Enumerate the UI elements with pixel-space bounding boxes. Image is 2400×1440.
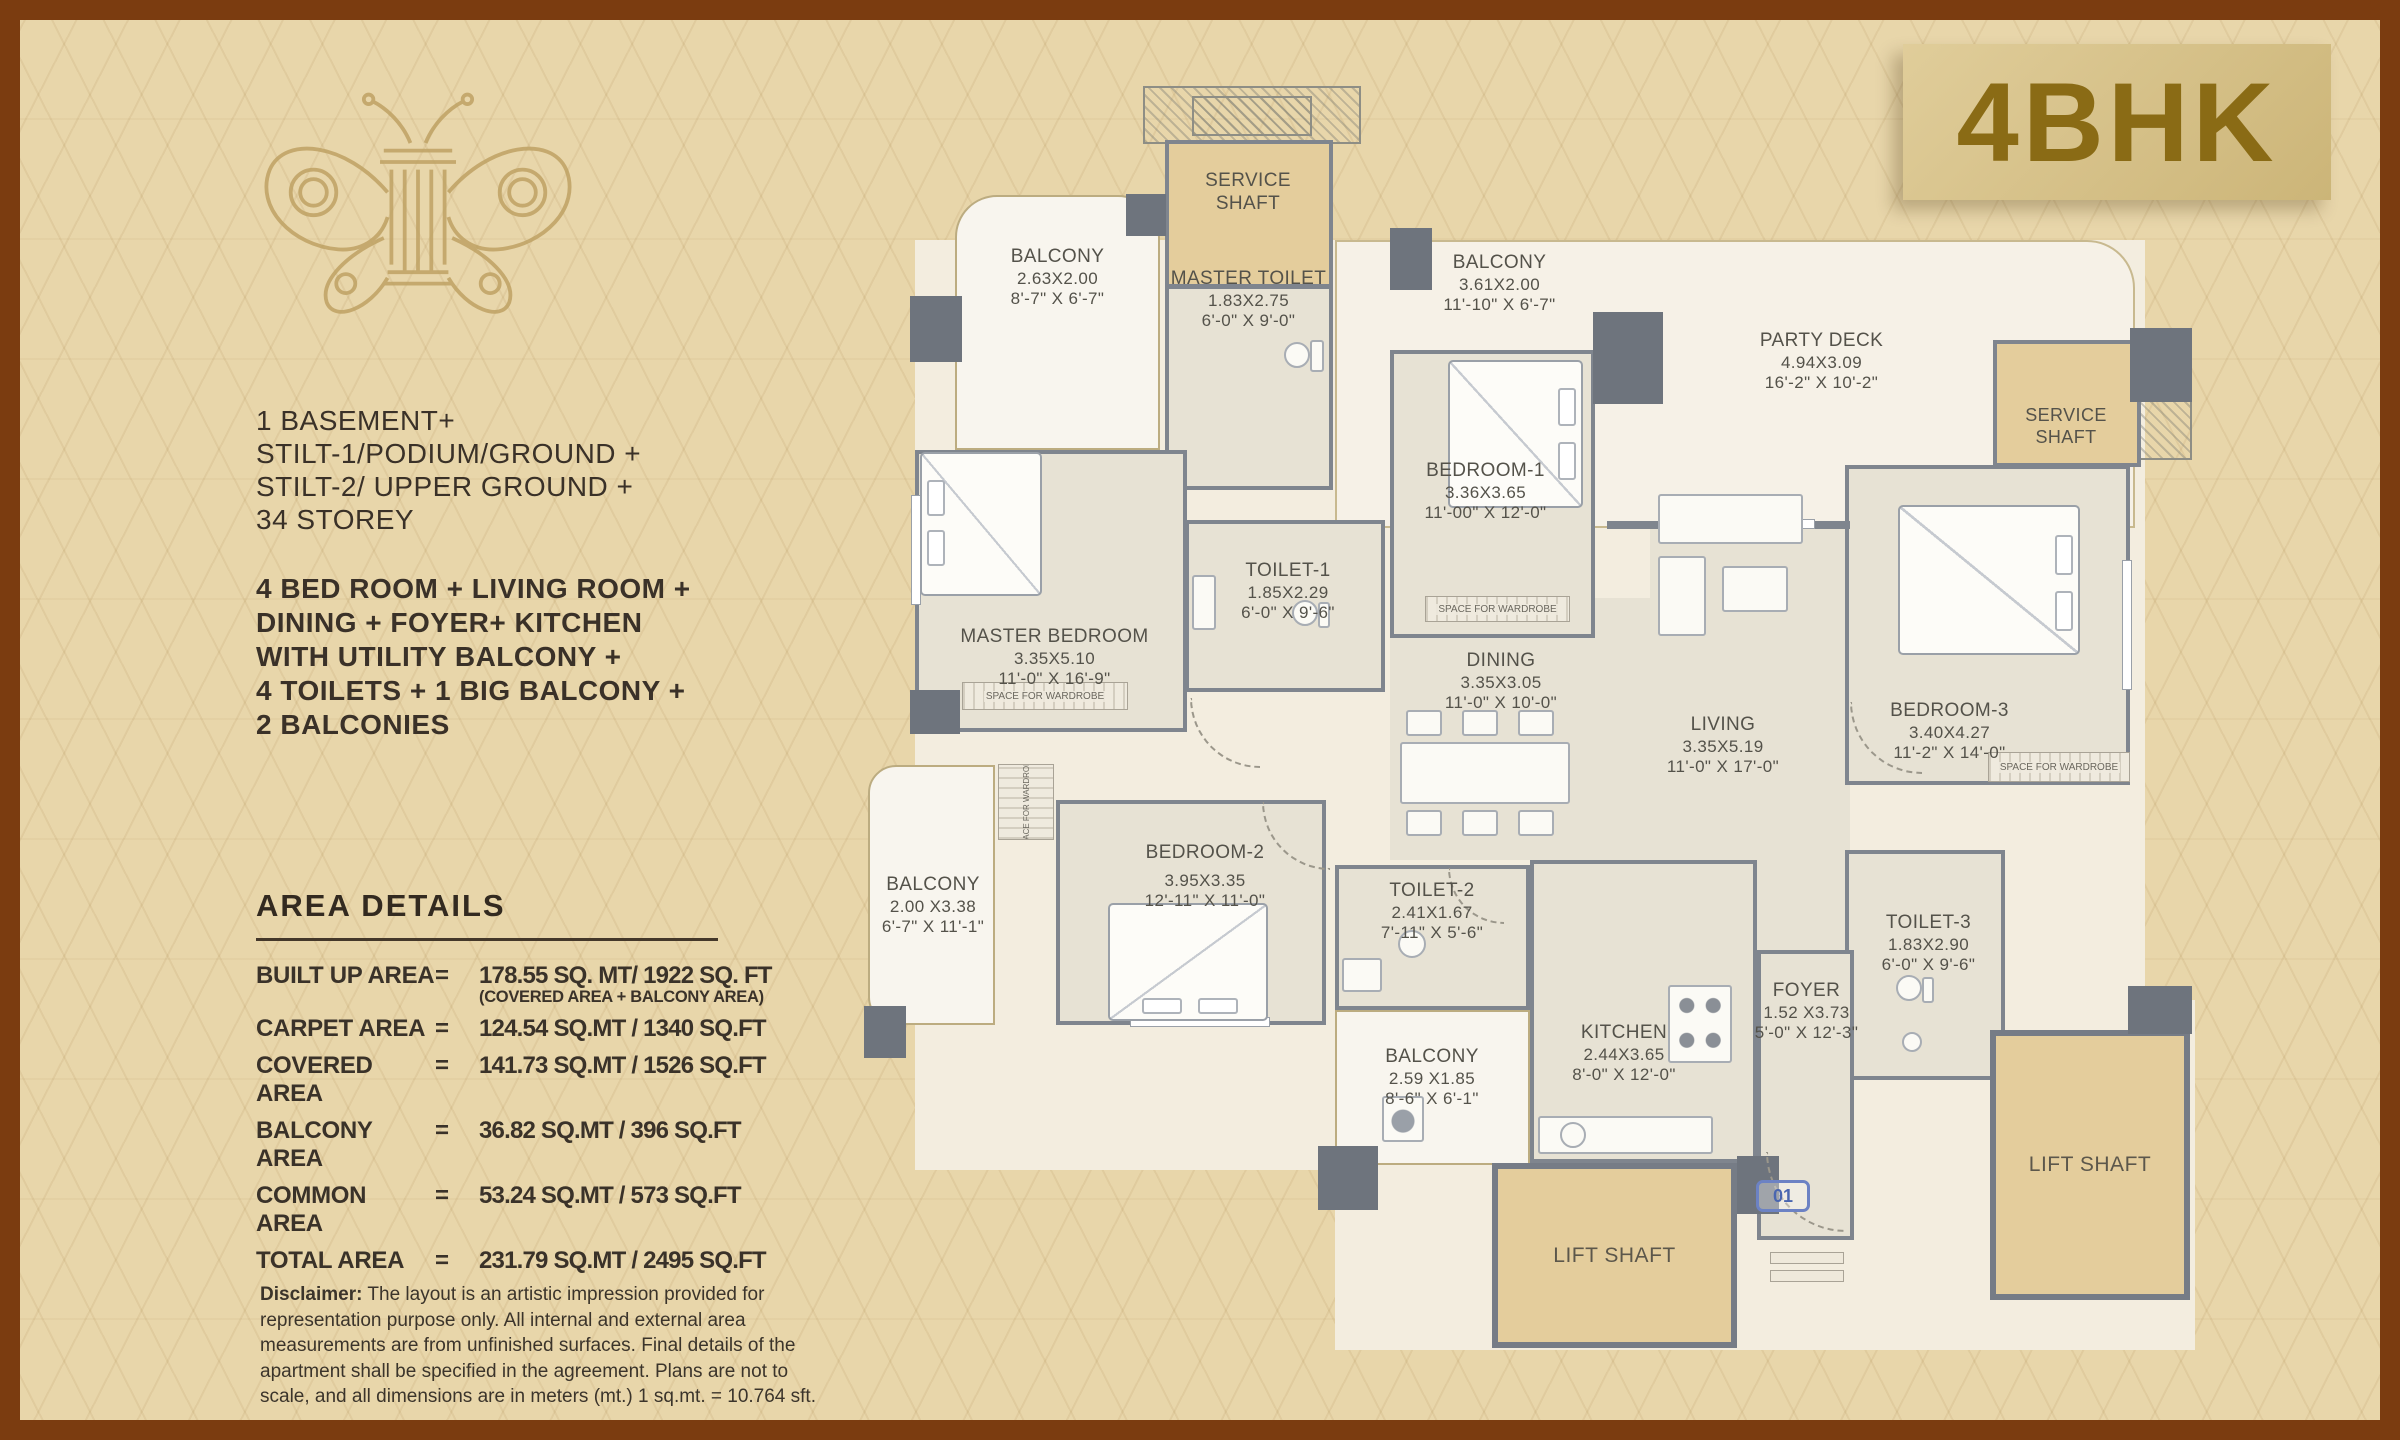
pillar [1318,1146,1378,1210]
unit-number-marker: 01 [1756,1180,1810,1212]
balcony-top-right-label: BALCONY 3.61X2.00 11'-10" X 6'-7" [1412,252,1587,316]
service-shaft-top-label: SERVICE SHAFT [1198,170,1298,216]
bed-icon [1108,903,1268,1021]
area-row-value: 178.55 SQ. MT/ 1922 SQ. FT [479,962,772,990]
bed-icon [920,452,1042,596]
pillar [910,690,960,734]
equals-sign: = [435,1052,479,1080]
dining-chair-icon [1462,810,1498,836]
unit-configuration-line: DINING + FOYER+ KITCHEN [256,606,691,640]
table-row: COVERED AREA = 141.73 SQ.MT / 1526 SQ.FT [256,1052,876,1108]
table-row: BUILT UP AREA = 178.55 SQ. MT/ 1922 SQ. … [256,962,876,990]
toilet-icon [1896,975,1922,1001]
sofa-icon [1658,494,1803,544]
bedroom-1-label: BEDROOM-1 3.36X3.65 11'-00" X 12'-0" [1398,460,1573,524]
area-row-value: 141.73 SQ.MT / 1526 SQ.FT [479,1052,766,1080]
living-label: LIVING 3.35X5.19 11'-0" X 17'-0" [1638,714,1808,778]
sink-icon [1902,1032,1922,1052]
area-details-title: AREA DETAILS [256,888,506,924]
table-row: CARPET AREA = 124.54 SQ.MT / 1340 SQ.FT [256,1015,876,1043]
equals-sign: = [435,962,479,990]
party-deck-label: PARTY DECK 4.94X3.09 16'-2" X 10'-2" [1734,330,1909,394]
wardrobe-label: SPACE FOR WARDROBE [984,691,1106,702]
area-row-label: BALCONY AREA [256,1117,435,1173]
unit-configuration-text: 4 BED ROOM + LIVING ROOM + DINING + FOYE… [256,572,691,742]
window [2122,560,2132,690]
service-shaft-right-label: SERVICE SHAFT [2016,405,2116,448]
building-structure-line: 34 STOREY [256,503,641,536]
dining-table-icon [1400,742,1570,804]
unit-configuration-line: 4 BED ROOM + LIVING ROOM + [256,572,691,606]
pillar [910,296,962,362]
dining-label: DINING 3.35X3.05 11'-0" X 10'-0" [1416,650,1586,714]
unit-configuration-line: 2 BALCONIES [256,708,691,742]
building-structure-line: STILT-2/ UPPER GROUND + [256,470,641,503]
bedroom-3-label: BEDROOM-3 3.40X4.27 11'-2" X 14'-0" [1862,700,2037,764]
area-details-underline [256,938,718,941]
dining-chair-icon [1462,710,1498,736]
toilet-tank-icon [1922,977,1934,1003]
toilet-3-label: TOILET-3 1.83X2.90 6'-0" X 9'-6" [1856,912,2001,976]
dining-chair-icon [1406,810,1442,836]
equals-sign: = [435,1015,479,1043]
unit-configuration-line: WITH UTILITY BALCONY + [256,640,691,674]
area-row-label: TOTAL AREA [256,1247,435,1275]
area-row-value: 53.24 SQ.MT / 573 SQ.FT [479,1182,741,1210]
table-row: BALCONY AREA = 36.82 SQ.MT / 396 SQ.FT [256,1117,876,1173]
butterfly-column-logo [228,78,608,360]
bed-icon [1898,505,2080,655]
armchair-icon [1658,556,1706,636]
wardrobe-label: SPACE FOR WARDROBE [1022,764,1031,840]
balcony-left-label: BALCONY 2.00 X3.38 6'-7" X 11'-1" [872,874,994,938]
kitchen-label: KITCHEN 2.44X3.65 8'-0" X 12'-0" [1544,1022,1704,1086]
area-row-value: 124.54 SQ.MT / 1340 SQ.FT [479,1015,766,1043]
wardrobe-strip: SPACE FOR WARDROBE [1425,596,1570,622]
area-row-label: BUILT UP AREA [256,962,435,990]
disclaimer-label: Disclaimer: [260,1284,362,1305]
area-row-value: 231.79 SQ.MT / 2495 SQ.FT [479,1247,766,1275]
master-bedroom-label: MASTER BEDROOM 3.35X5.10 11'-0" X 16'-9" [952,626,1157,690]
vanity-icon [1342,958,1382,992]
dining-chair-icon [1518,810,1554,836]
wardrobe-strip-vertical: SPACE FOR WARDROBE [998,764,1054,840]
built-up-area-note: (COVERED AREA + BALCONY AREA) [256,988,876,1007]
toilet-2-label: TOILET-2 2.41X1.67 7'-11" X 5'-6" [1352,880,1512,944]
lift-shaft-label: LIFT SHAFT [2029,1153,2151,1177]
area-row-label: CARPET AREA [256,1015,435,1043]
dining-chair-icon [1406,710,1442,736]
pillar [1126,194,1166,236]
entrance-step [1770,1252,1844,1264]
unit-configuration-line: 4 TOILETS + 1 BIG BALCONY + [256,674,691,708]
bedroom-2-label: BEDROOM-2 3.95X3.35 12'-11" X 11'-0" [1110,842,1300,912]
disclaimer-text: Disclaimer: The layout is an artistic im… [260,1282,838,1410]
coffee-table-icon [1722,566,1788,612]
sink-icon [1560,1122,1586,1148]
unit-type-badge: 4BHK [1903,44,2331,200]
master-toilet-label: MASTER TOILET 1.83X2.75 6'-0" X 9'-0" [1156,268,1341,332]
pillar [2130,328,2192,402]
toilet-tank-icon [1310,340,1324,372]
equals-sign: = [435,1247,479,1275]
area-details-table: BUILT UP AREA = 178.55 SQ. MT/ 1922 SQ. … [256,962,876,1284]
area-row-label: COMMON AREA [256,1182,435,1238]
room-lift-shaft-bottom: LIFT SHAFT [1492,1163,1737,1348]
building-structure-line: 1 BASEMENT+ [256,404,641,437]
table-row: COMMON AREA = 53.24 SQ.MT / 573 SQ.FT [256,1182,876,1238]
equals-sign: = [435,1117,479,1145]
entrance-step [1770,1270,1844,1282]
area-row-label: COVERED AREA [256,1052,435,1108]
pillar [1593,312,1663,404]
balcony-top-left-label: BALCONY 2.63X2.00 8'-7" X 6'-7" [965,246,1150,310]
table-row-total: TOTAL AREA = 231.79 SQ.MT / 2495 SQ.FT [256,1247,876,1275]
roof-hatch-structure-inner [1192,96,1312,136]
balcony-bottom-label: BALCONY 2.59 X1.85 8'-6" X 6'-1" [1352,1046,1512,1110]
pillar [864,1006,906,1058]
wardrobe-label: SPACE FOR WARDROBE [1436,604,1558,615]
equals-sign: = [435,1182,479,1210]
toilet-1-label: TOILET-1 1.85X2.29 6'-0" X 9'-6" [1208,560,1368,624]
floor-plan-brochure: 1 BASEMENT+ STILT-1/PODIUM/GROUND + STIL… [0,0,2400,1440]
pillar [2128,986,2192,1034]
dining-chair-icon [1518,710,1554,736]
foyer-label: FOYER 1.52 X3.73 5'-0" X 12'-3" [1744,980,1869,1044]
lift-shaft-label: LIFT SHAFT [1553,1244,1675,1268]
room-lift-shaft-right: LIFT SHAFT [1990,1030,2190,1300]
building-structure-text: 1 BASEMENT+ STILT-1/PODIUM/GROUND + STIL… [256,404,641,536]
building-structure-line: STILT-1/PODIUM/GROUND + [256,437,641,470]
toilet-icon [1284,342,1310,368]
area-row-value: 36.82 SQ.MT / 396 SQ.FT [479,1117,741,1145]
